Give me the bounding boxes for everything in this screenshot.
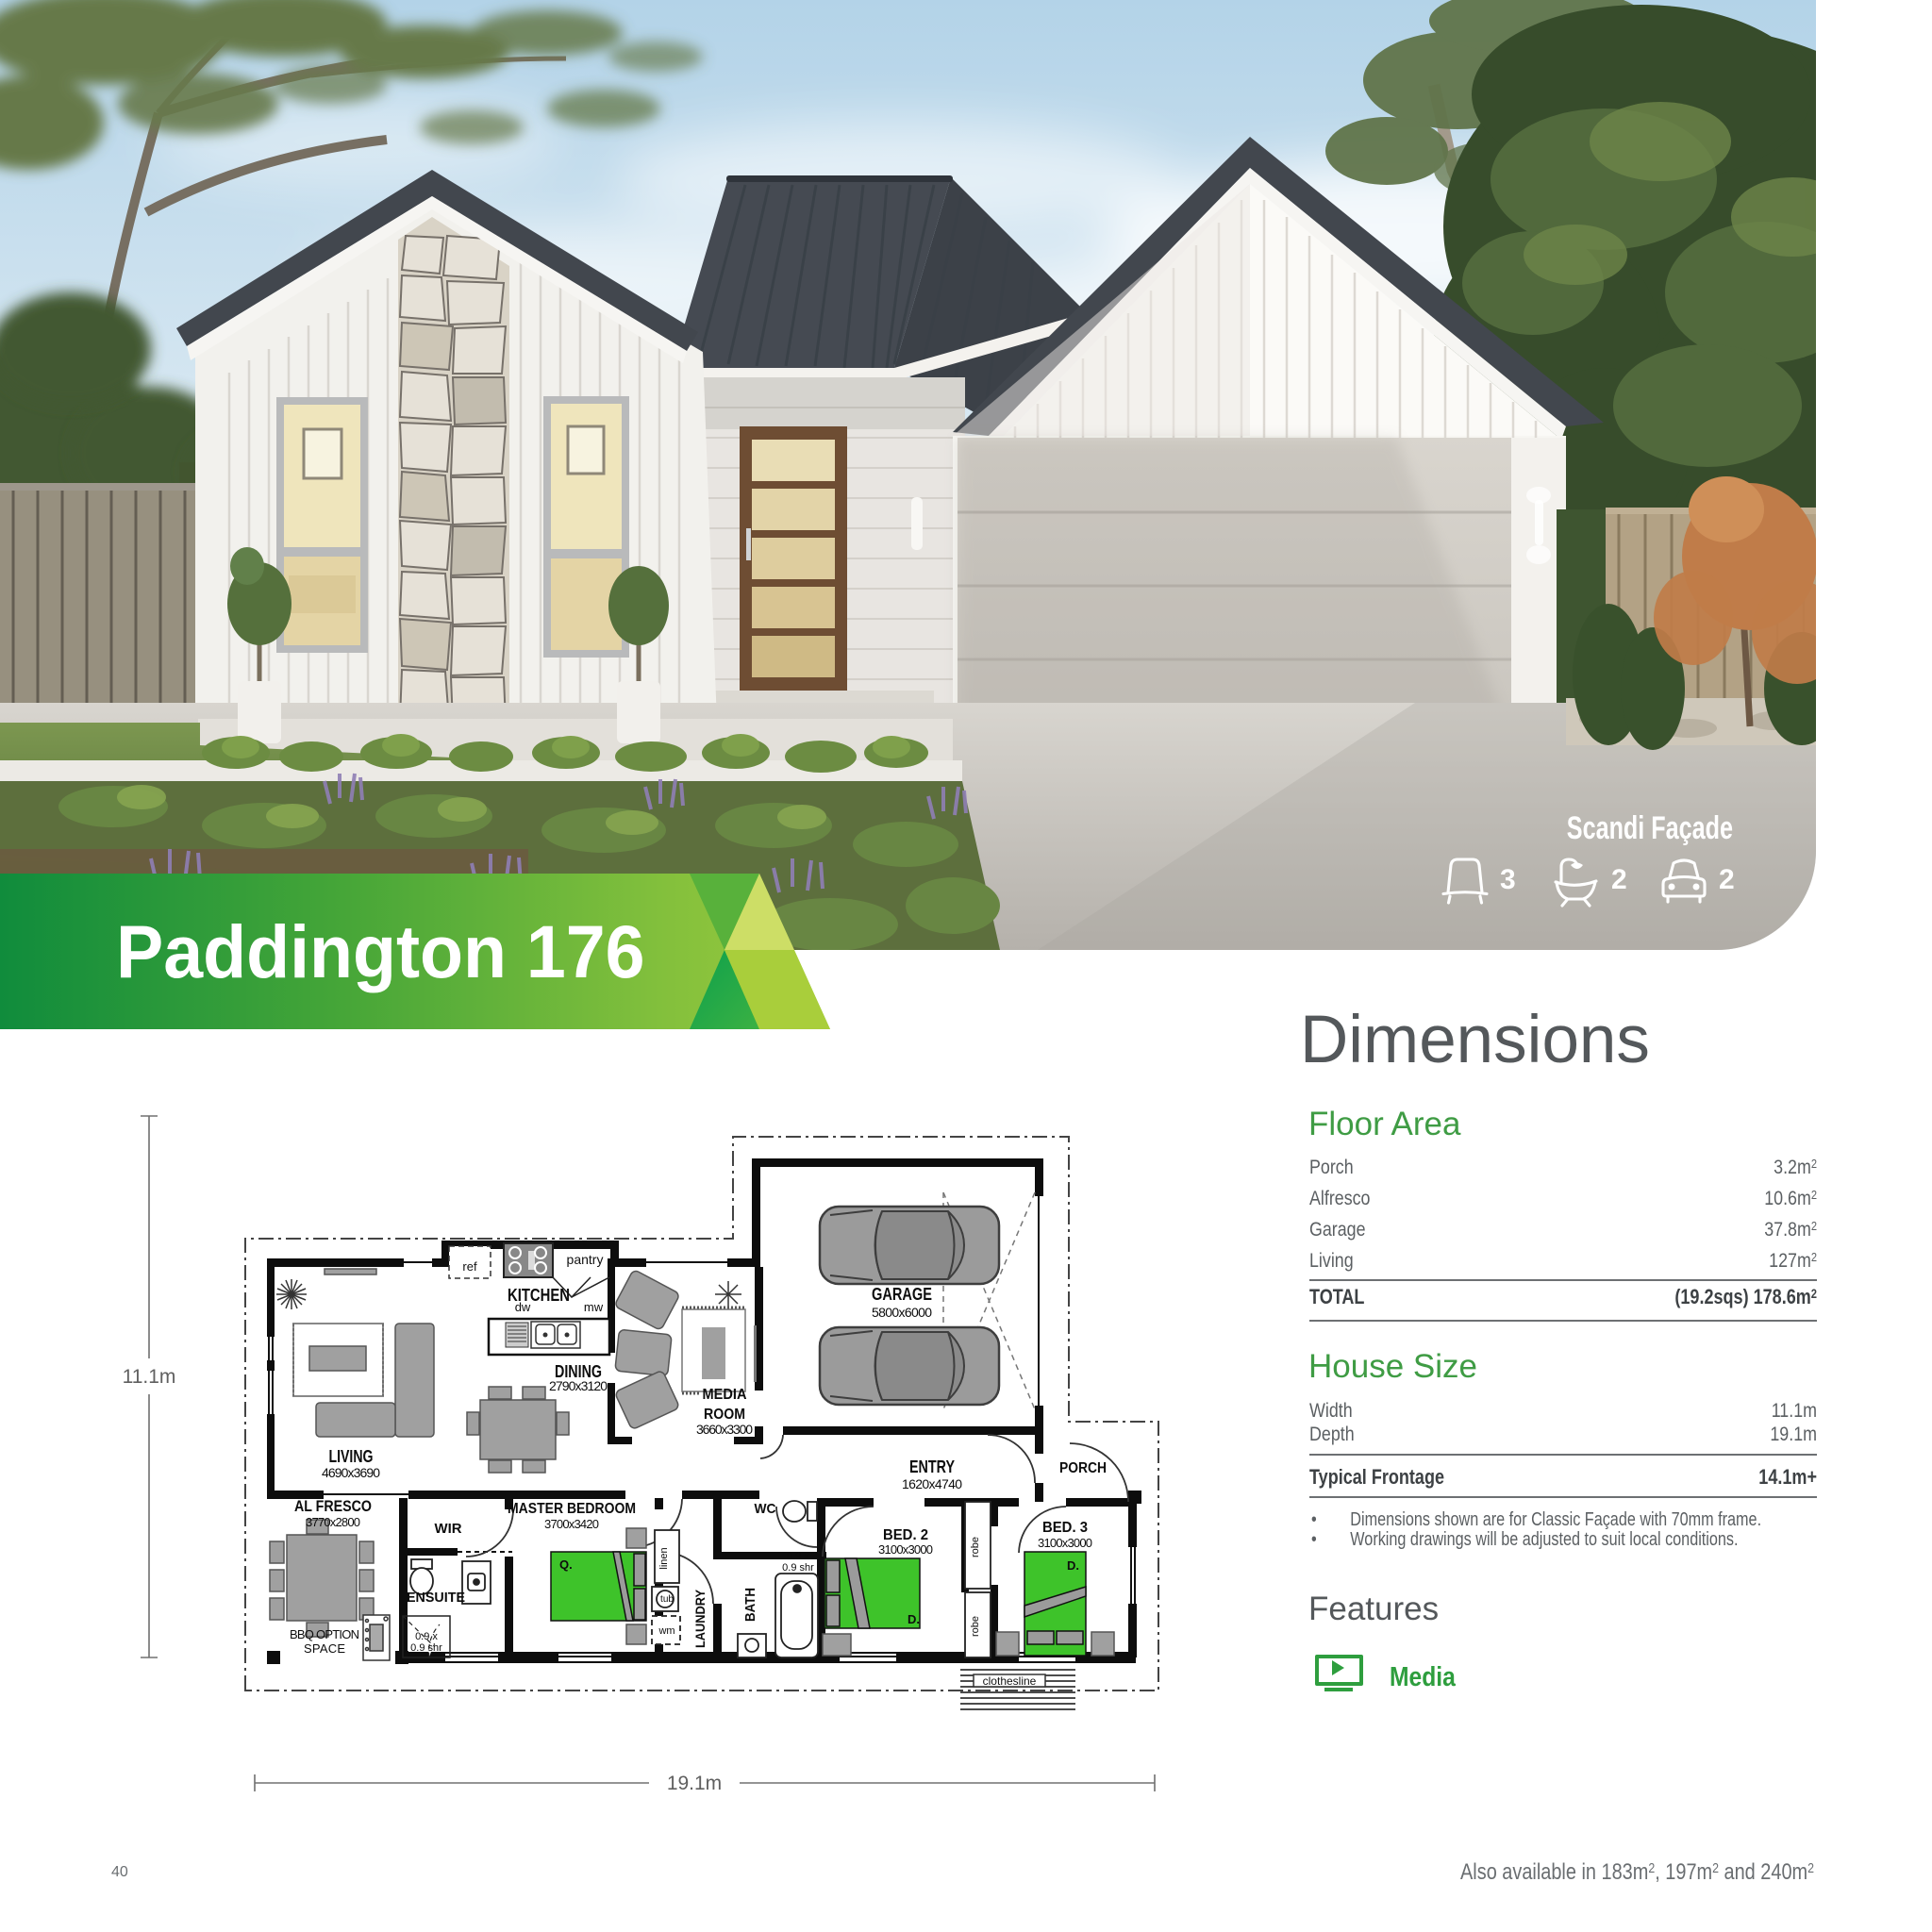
svg-text:3700x3420: 3700x3420 xyxy=(544,1517,599,1531)
svg-text:1620x4740: 1620x4740 xyxy=(902,1476,962,1491)
svg-text:LIVING: LIVING xyxy=(329,1447,374,1466)
svg-text:PORCH: PORCH xyxy=(1059,1460,1107,1476)
svg-text:5800x6000: 5800x6000 xyxy=(872,1305,932,1320)
svg-text:AL FRESCO: AL FRESCO xyxy=(294,1497,372,1515)
svg-text:ENSUITE: ENSUITE xyxy=(407,1590,465,1606)
svg-text:0.9 shr: 0.9 shr xyxy=(410,1642,442,1654)
svg-text:0.9 x: 0.9 x xyxy=(415,1631,438,1642)
svg-text:mw: mw xyxy=(584,1300,604,1314)
svg-text:ROOM: ROOM xyxy=(704,1407,745,1423)
svg-text:BBQ OPTION: BBQ OPTION xyxy=(290,1627,359,1641)
svg-text:D.: D. xyxy=(1067,1558,1079,1573)
svg-text:ref: ref xyxy=(462,1259,477,1274)
svg-text:dw: dw xyxy=(515,1300,531,1314)
svg-text:3100x3000: 3100x3000 xyxy=(878,1542,933,1557)
svg-text:MASTER BEDROOM: MASTER BEDROOM xyxy=(508,1501,636,1517)
svg-text:tub: tub xyxy=(660,1594,674,1605)
svg-text:ENTRY: ENTRY xyxy=(909,1457,955,1476)
svg-text:Q.: Q. xyxy=(559,1557,573,1572)
svg-text:robe: robe xyxy=(970,1616,981,1637)
svg-text:LAUNDRY: LAUNDRY xyxy=(692,1589,708,1648)
svg-text:MEDIA: MEDIA xyxy=(703,1387,747,1403)
svg-text:SPACE: SPACE xyxy=(304,1641,345,1656)
svg-text:11.1m: 11.1m xyxy=(123,1366,176,1388)
svg-text:2790x3120: 2790x3120 xyxy=(549,1378,608,1393)
svg-text:4690x3690: 4690x3690 xyxy=(322,1465,380,1480)
svg-text:pantry: pantry xyxy=(567,1252,604,1267)
svg-text:BATH: BATH xyxy=(742,1588,758,1622)
svg-text:wm: wm xyxy=(658,1625,675,1637)
svg-text:linen: linen xyxy=(658,1547,670,1569)
svg-text:WC: WC xyxy=(755,1501,776,1517)
svg-text:3100x3000: 3100x3000 xyxy=(1038,1536,1092,1550)
svg-text:19.1m: 19.1m xyxy=(667,1773,722,1794)
svg-text:BED. 2: BED. 2 xyxy=(883,1527,928,1543)
svg-text:GARAGE: GARAGE xyxy=(872,1285,932,1304)
svg-text:3660x3300: 3660x3300 xyxy=(696,1422,753,1437)
svg-text:robe: robe xyxy=(970,1537,981,1557)
svg-text:3770x2800: 3770x2800 xyxy=(306,1515,360,1529)
svg-text:0.9 x: 0.9 x xyxy=(787,1551,809,1562)
svg-text:0.9 shr: 0.9 shr xyxy=(782,1562,814,1574)
svg-text:BED. 3: BED. 3 xyxy=(1042,1520,1088,1536)
svg-text:D.: D. xyxy=(908,1612,920,1626)
svg-text:clothesline: clothesline xyxy=(983,1674,1037,1688)
svg-text:WIR: WIR xyxy=(435,1521,462,1537)
